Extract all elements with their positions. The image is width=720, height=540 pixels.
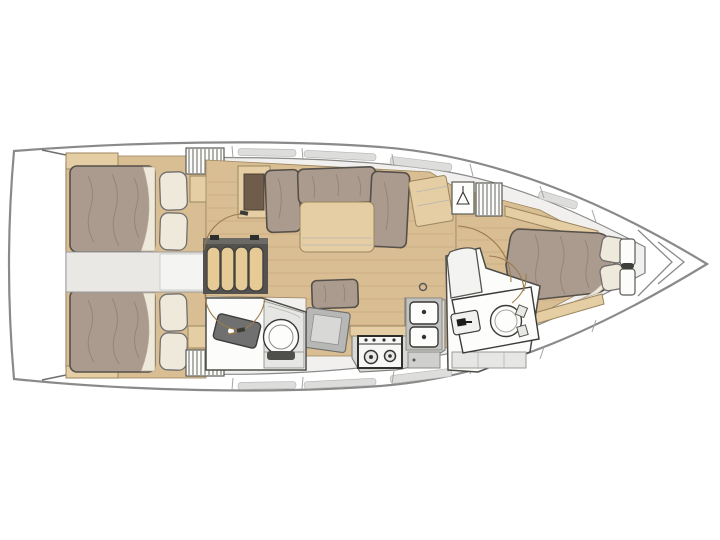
toilet-base [267, 351, 295, 360]
double-berth [70, 290, 155, 372]
companionway-passage [66, 252, 206, 292]
yacht-floor-plan [0, 0, 720, 540]
step [249, 247, 263, 291]
bow-shelf [620, 239, 635, 265]
aft-head [206, 298, 306, 370]
saloon-table [300, 202, 374, 252]
head-wall [447, 248, 482, 298]
step [221, 247, 234, 291]
aft-cabin-port [66, 153, 206, 252]
folding-panel-inset [310, 314, 341, 345]
pillow [159, 172, 187, 211]
settee-cushion-left [265, 169, 301, 232]
bow-shelf [620, 269, 635, 295]
hanging-locker [452, 182, 474, 214]
counter-fiddle [350, 326, 406, 336]
pillow [159, 213, 187, 251]
pillow [159, 333, 187, 371]
hatched-locker [476, 183, 502, 216]
double-sink [406, 298, 442, 350]
bench-seat [312, 279, 359, 309]
pillow [159, 294, 187, 332]
aft-cabin-starboard [66, 290, 206, 378]
sideboard [408, 175, 453, 227]
companionway-steps [203, 235, 268, 294]
stove [358, 336, 402, 368]
double-berth [70, 166, 155, 252]
head-steps [452, 352, 526, 368]
step [235, 247, 248, 291]
settee-cushion-back [297, 167, 376, 205]
floor-plan-canvas [0, 0, 720, 540]
cabinet-dark-inset [244, 174, 264, 210]
step [207, 247, 220, 291]
bow-hatch [621, 263, 634, 269]
